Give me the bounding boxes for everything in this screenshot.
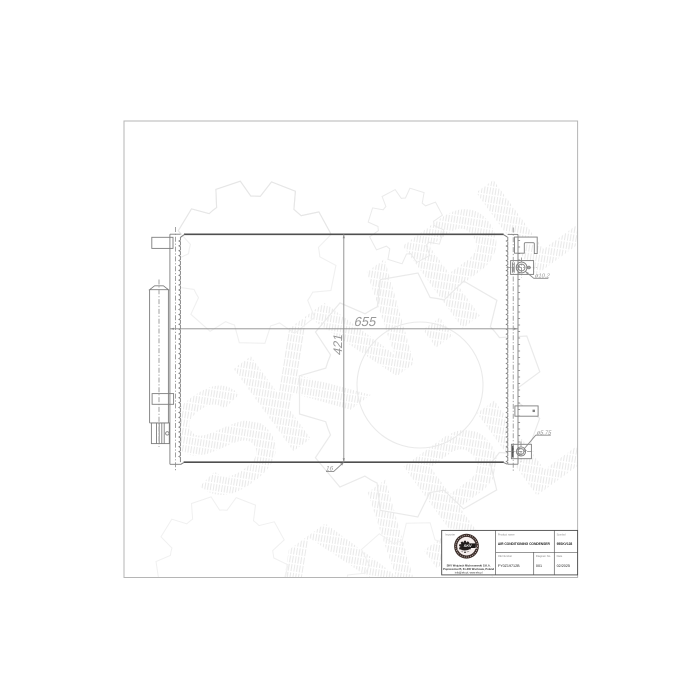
svg-text:655: 655 xyxy=(353,314,378,329)
svg-text:Poprzeczna 25, 61-300 Wschowa,: Poprzeczna 25, 61-300 Wschowa, Poland xyxy=(443,567,494,571)
svg-text:001: 001 xyxy=(536,564,542,568)
svg-text:OE Number: OE Number xyxy=(498,554,512,558)
svg-text:SKV Wojciech Michorzewski S.K.: SKV Wojciech Michorzewski S.K.A. xyxy=(447,563,491,567)
svg-text:Diagram No.: Diagram No. xyxy=(536,554,551,558)
svg-text:421: 421 xyxy=(331,332,345,356)
svg-text:02/2025: 02/2025 xyxy=(557,564,570,568)
svg-text:ø10.2: ø10.2 xyxy=(534,273,550,279)
svg-text:ø5.75: ø5.75 xyxy=(536,430,553,436)
svg-text:Symbol: Symbol xyxy=(557,532,566,536)
svg-text:SKV: SKV xyxy=(464,543,472,548)
svg-text:info@skv.pl, www.skv.pl: info@skv.pl, www.skv.pl xyxy=(455,570,483,574)
svg-text:Product name: Product name xyxy=(498,532,515,536)
svg-text:Importer: Importer xyxy=(445,532,455,536)
svg-text:95SKV128: 95SKV128 xyxy=(557,542,573,546)
svg-text:AIR CONDITIONING CONDENSER: AIR CONDITIONING CONDENSER xyxy=(498,542,551,546)
svg-text:FY0Z19712B: FY0Z19712B xyxy=(498,564,520,568)
svg-text:Date: Date xyxy=(557,554,563,558)
